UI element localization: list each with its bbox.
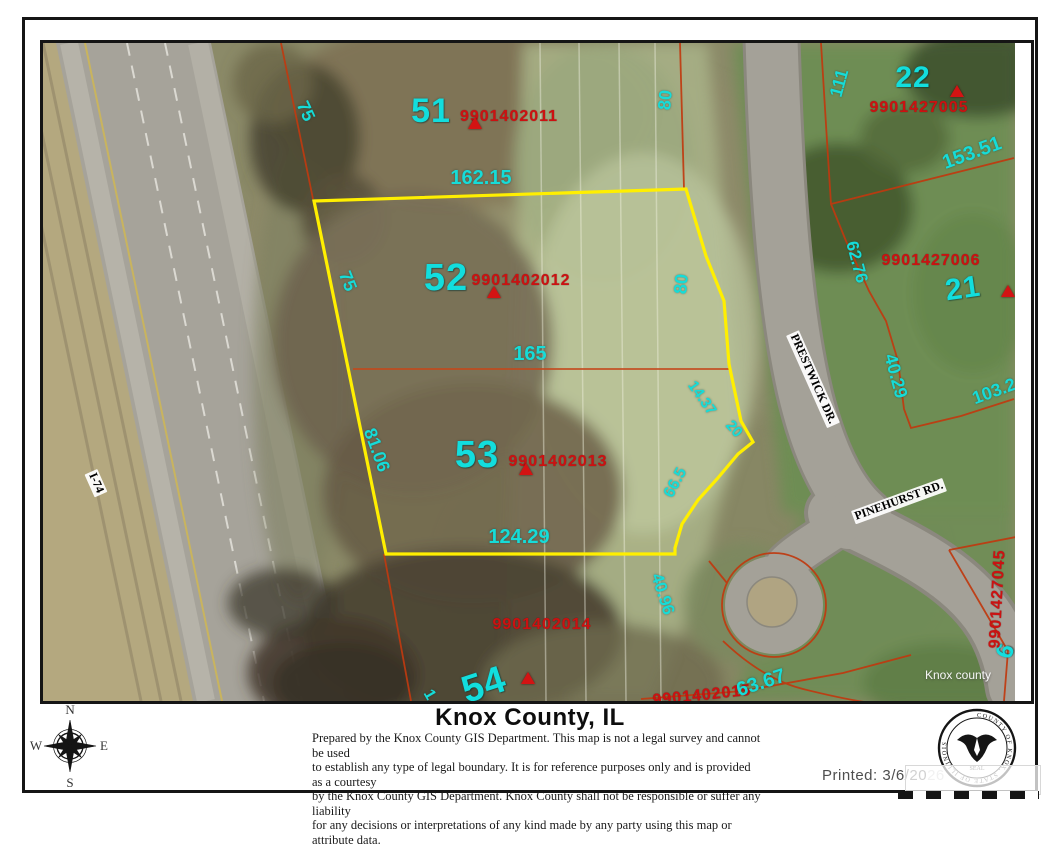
dashed-border-segment (898, 791, 1039, 799)
disclaimer-text: Prepared by the Knox County GIS Departme… (312, 731, 762, 847)
compass-rose-icon: N S E W (26, 702, 114, 790)
aerial-photo-canvas (43, 43, 1015, 701)
disclaimer-line: to establish any type of legal boundary.… (312, 760, 762, 789)
map-document-frame: 5152535422216 99014020119901402012990140… (22, 17, 1038, 793)
cul-de-sac-island (747, 577, 797, 627)
map-title: Knox County, IL (280, 704, 780, 732)
disclaimer-line: for any decisions or interpretations of … (312, 818, 762, 847)
disclaimer-line: Prepared by the Knox County GIS Departme… (312, 731, 762, 760)
map-viewport[interactable]: 5152535422216 99014020119901402012990140… (40, 40, 1034, 704)
compass-south-label: S (66, 775, 73, 790)
highlighted-parcel-boundary (314, 189, 753, 554)
compass-east-label: E (100, 738, 108, 753)
compass-north-label: N (65, 702, 75, 717)
disclaimer-lines: Prepared by the Knox County GIS Departme… (312, 731, 762, 847)
disclaimer-line: by the Knox County GIS Department. Knox … (312, 789, 762, 818)
seal-eagle-icon (957, 734, 997, 762)
compass-west-label: W (30, 738, 43, 753)
aerial-photo: 5152535422216 99014020119901402012990140… (43, 43, 1015, 701)
